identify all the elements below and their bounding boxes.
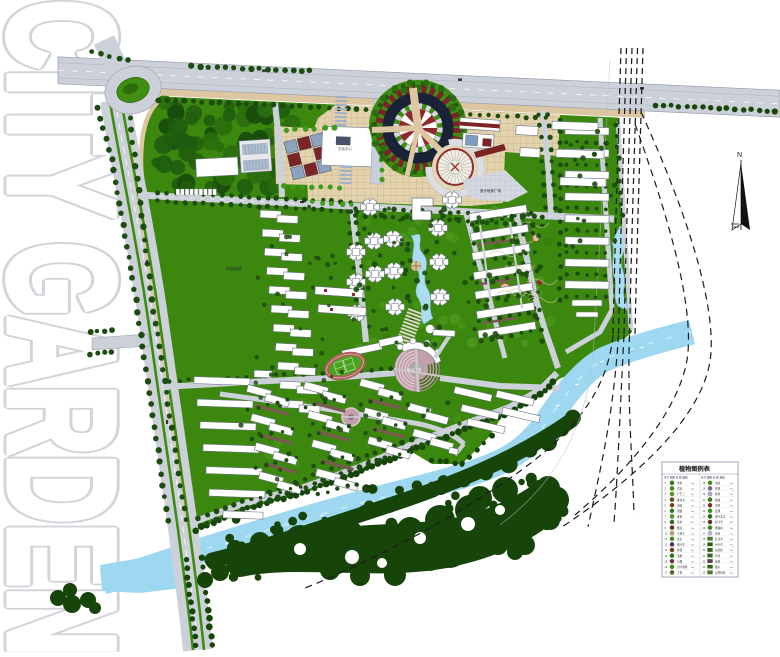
svg-text:迎春: 迎春 xyxy=(715,531,721,535)
svg-text:国槐: 国槐 xyxy=(677,509,683,513)
svg-text:3m: 3m xyxy=(730,494,733,496)
svg-text:红叶李: 红叶李 xyxy=(715,520,723,524)
svg-text:序号 图例 名 称 规格: 序号 图例 名 称 规格 xyxy=(701,476,725,480)
svg-text:文化中心: 文化中心 xyxy=(338,146,352,151)
svg-text:雪松: 雪松 xyxy=(677,481,683,485)
svg-text:樱花: 樱花 xyxy=(677,526,683,530)
svg-text:悬铃木: 悬铃木 xyxy=(677,498,685,502)
svg-text:3m: 3m xyxy=(691,545,694,547)
svg-text:3m: 3m xyxy=(730,561,733,563)
svg-text:3m: 3m xyxy=(691,539,694,541)
svg-text:垂柳: 垂柳 xyxy=(677,515,683,519)
svg-text:3m: 3m xyxy=(730,545,733,547)
svg-text:碧桃: 碧桃 xyxy=(715,487,721,491)
svg-text:3m: 3m xyxy=(730,522,733,524)
svg-text:3m: 3m xyxy=(691,517,694,519)
svg-text:金叶女贞: 金叶女贞 xyxy=(715,515,726,519)
svg-text:海棠: 海棠 xyxy=(715,481,721,485)
svg-text:3m: 3m xyxy=(730,483,733,485)
svg-text:中心广场: 中心广场 xyxy=(407,367,421,372)
svg-text:3m: 3m xyxy=(730,528,733,530)
svg-text:人面子: 人面子 xyxy=(677,531,685,535)
svg-text:植物图例表: 植物图例表 xyxy=(678,465,711,473)
svg-text:紫荆: 紫荆 xyxy=(715,492,721,496)
svg-text:序号 图例 名 称 规格: 序号 图例 名 称 规格 xyxy=(664,476,688,480)
svg-text:紫藤: 紫藤 xyxy=(715,498,721,502)
svg-text:灌木: 灌木 xyxy=(715,565,721,569)
svg-text:3m: 3m xyxy=(691,567,694,569)
svg-text:月季: 月季 xyxy=(715,503,721,507)
svg-text:保留绿地: 保留绿地 xyxy=(226,265,242,271)
svg-text:3m: 3m xyxy=(691,528,694,530)
svg-text:3m: 3m xyxy=(691,483,694,485)
svg-text:3m: 3m xyxy=(730,489,733,491)
svg-text:丁香: 丁香 xyxy=(677,571,683,575)
svg-text:3m: 3m xyxy=(730,539,733,541)
svg-text:紫叶李: 紫叶李 xyxy=(677,543,685,547)
svg-text:女贞: 女贞 xyxy=(677,537,683,541)
svg-text:泡桐: 泡桐 xyxy=(677,554,683,558)
svg-text:3m: 3m xyxy=(691,533,694,535)
svg-text:连翘: 连翘 xyxy=(715,509,721,513)
svg-text:合欢: 合欢 xyxy=(677,487,683,491)
svg-text:3m: 3m xyxy=(730,550,733,552)
svg-text:3m: 3m xyxy=(730,556,733,558)
svg-text:白皮松: 白皮松 xyxy=(715,548,723,552)
svg-text:3m: 3m xyxy=(691,500,694,502)
svg-text:3m: 3m xyxy=(730,517,733,519)
svg-text:3m: 3m xyxy=(730,505,733,507)
svg-text:3m: 3m xyxy=(730,500,733,502)
svg-text:3m: 3m xyxy=(691,511,694,513)
svg-text:大叶草: 大叶草 xyxy=(715,543,723,547)
svg-text:草坪: 草坪 xyxy=(715,554,721,558)
svg-text:珊瑚树: 珊瑚树 xyxy=(715,526,723,530)
svg-text:红花草: 红花草 xyxy=(715,537,723,541)
svg-text:广玉兰: 广玉兰 xyxy=(677,492,685,496)
svg-text:3m: 3m xyxy=(691,573,694,575)
svg-text:N: N xyxy=(737,152,742,159)
svg-text:大叶黄杨: 大叶黄杨 xyxy=(677,565,688,569)
svg-text:3m: 3m xyxy=(730,567,733,569)
svg-text:3m: 3m xyxy=(691,505,694,507)
svg-text:紫薇: 紫薇 xyxy=(677,548,683,552)
svg-text:3m: 3m xyxy=(730,573,733,575)
svg-text:3m: 3m xyxy=(691,522,694,524)
svg-text:自然树丛: 自然树丛 xyxy=(715,571,726,575)
svg-text:音乐喷泉广场: 音乐喷泉广场 xyxy=(480,188,501,193)
svg-text:白蜡: 白蜡 xyxy=(677,503,683,507)
svg-text:栾树: 栾树 xyxy=(677,520,683,524)
svg-text:3m: 3m xyxy=(730,511,733,513)
svg-text:3m: 3m xyxy=(691,550,694,552)
svg-text:3m: 3m xyxy=(691,561,694,563)
svg-text:铺地: 铺地 xyxy=(715,559,721,563)
svg-text:3m: 3m xyxy=(691,494,694,496)
svg-text:3m: 3m xyxy=(691,489,694,491)
svg-text:石榴: 石榴 xyxy=(677,559,683,563)
svg-text:3m: 3m xyxy=(691,556,694,558)
svg-text:3m: 3m xyxy=(730,533,733,535)
